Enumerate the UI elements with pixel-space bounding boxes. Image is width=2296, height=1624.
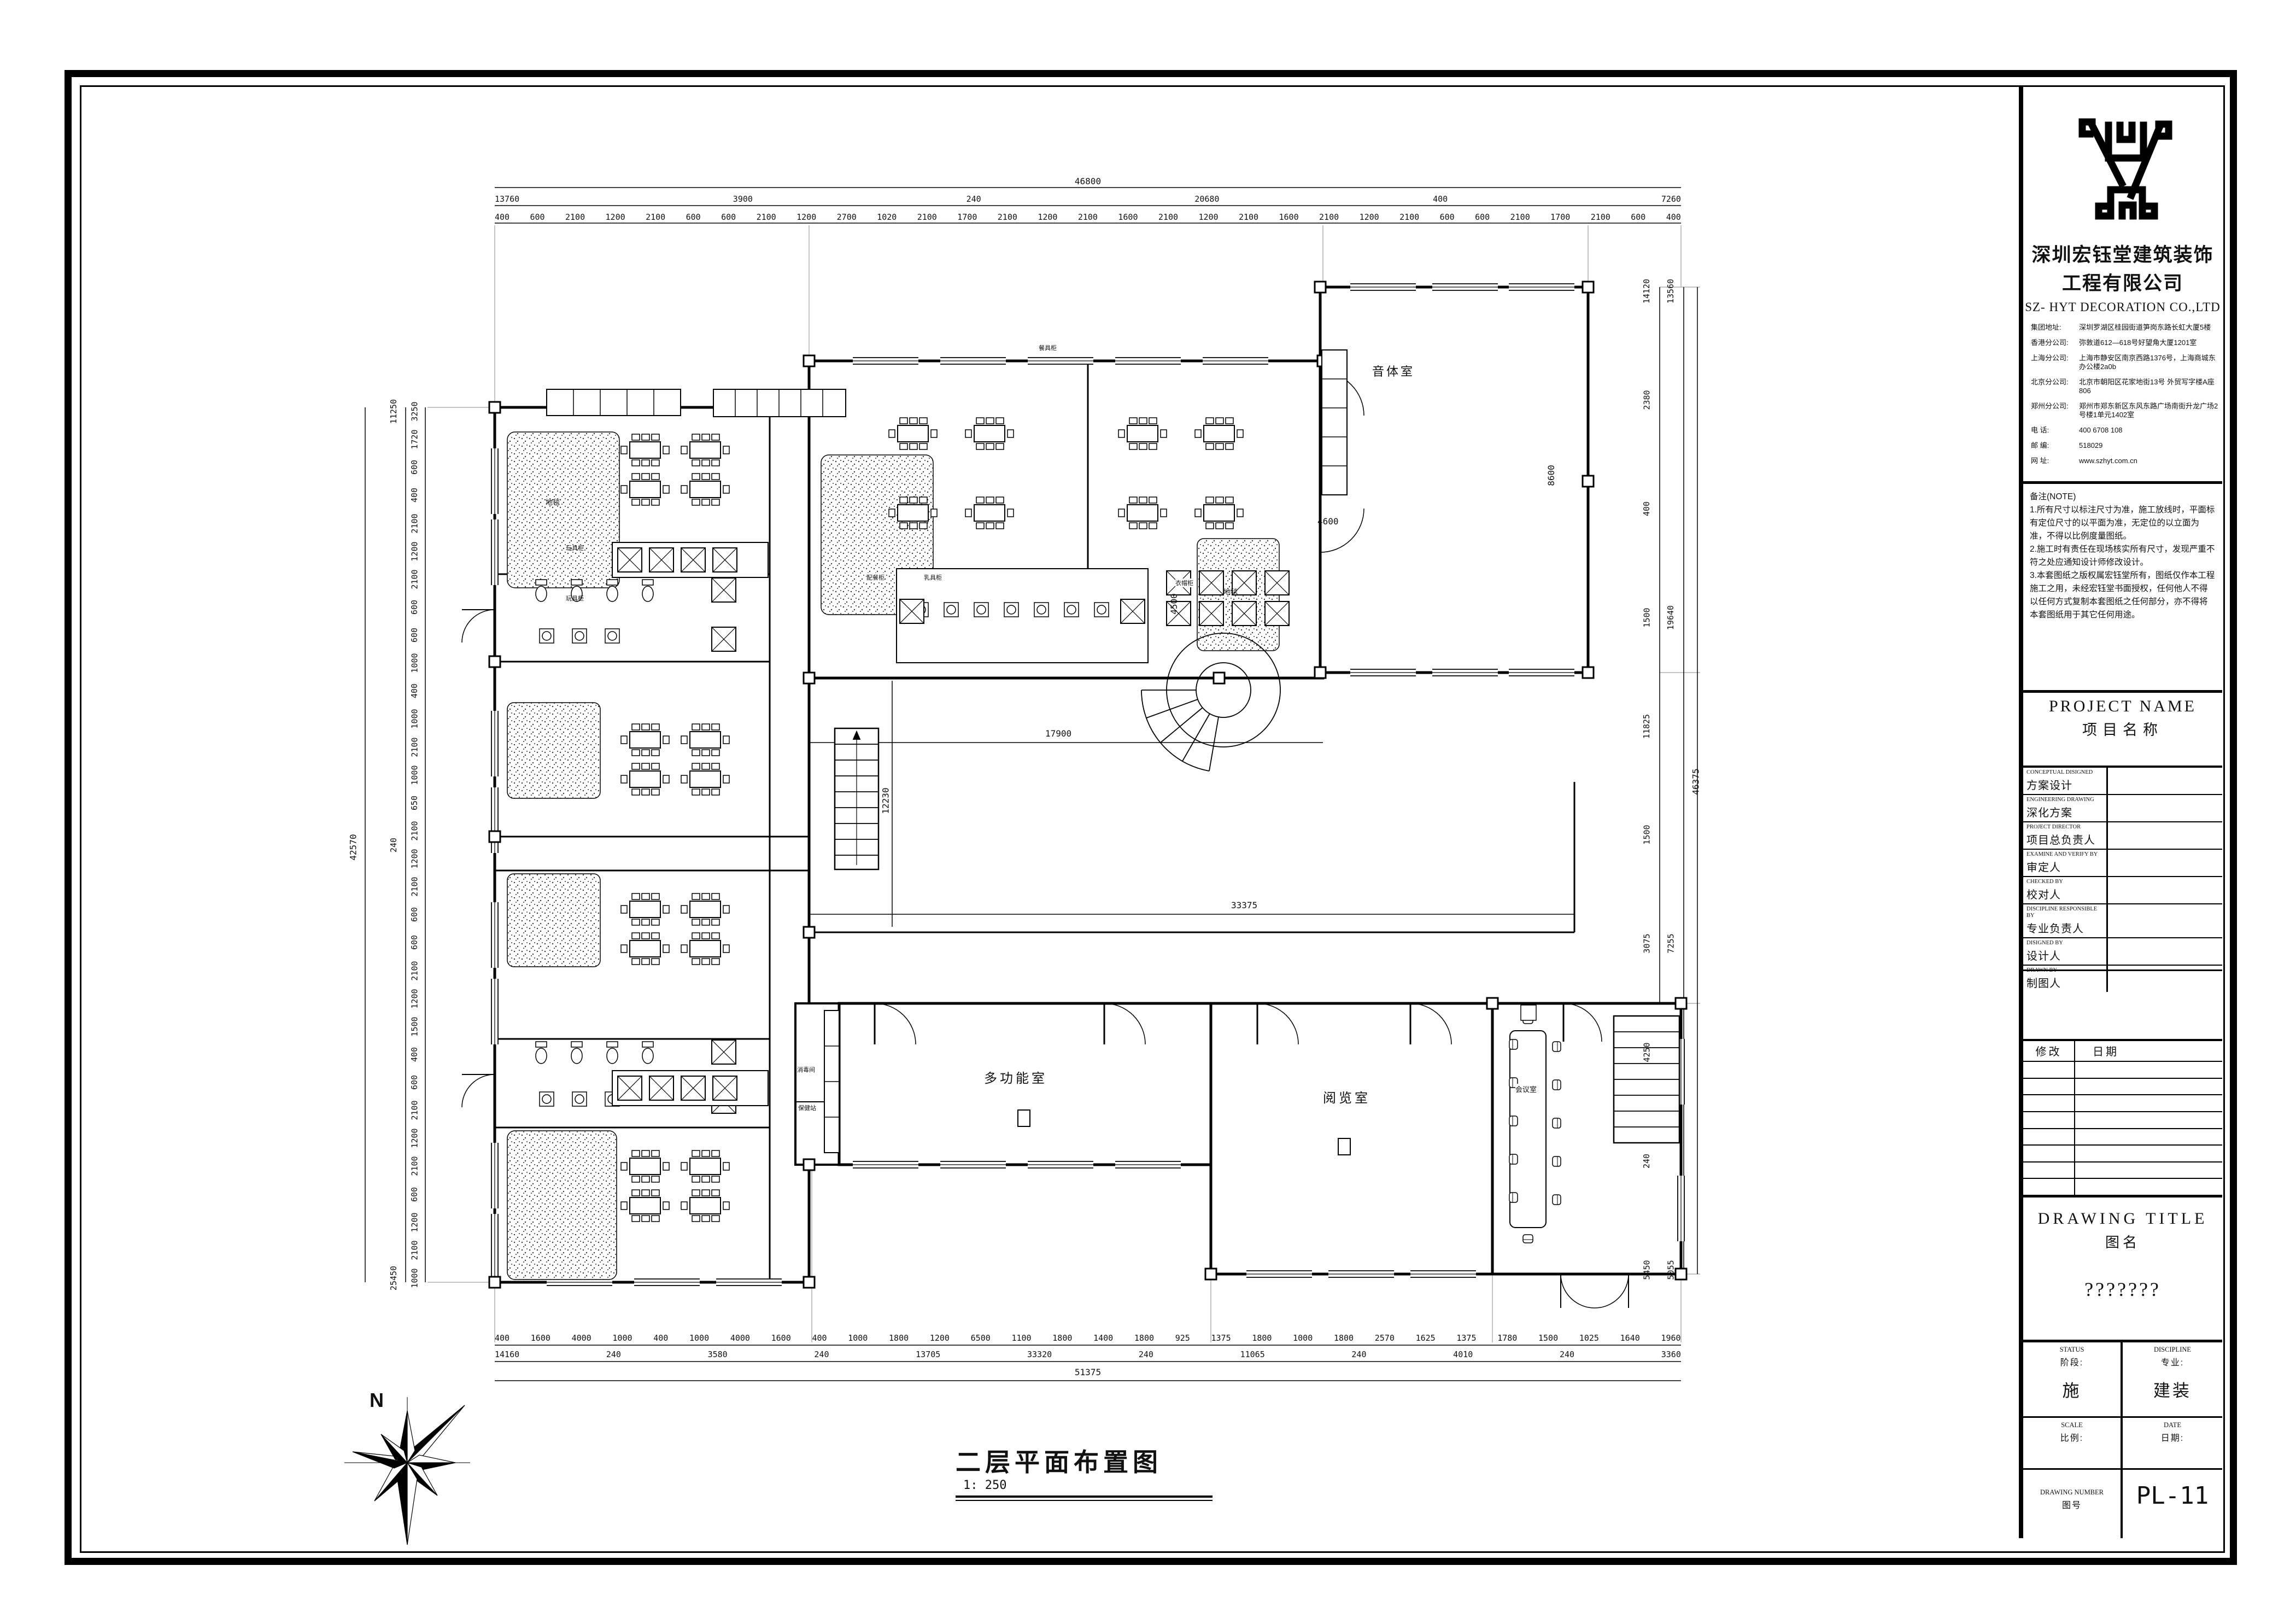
sign-row-en: DISIGNED BY xyxy=(2026,940,2103,947)
project-name-en: PROJECT NAME xyxy=(2023,697,2222,716)
addr-text: 400 6708 108 xyxy=(2079,426,2219,435)
blank-band xyxy=(2023,969,2222,1039)
notes-section: 备注(NOTE) 1.所有尺寸以标注尺寸为准，施工放线时，平面标有定位尺寸的以平… xyxy=(2023,481,2222,690)
sign-row-value xyxy=(2108,795,2222,821)
dim-17900: 17900 xyxy=(1045,728,1071,739)
company-name-cn-line2: 工程有限公司 xyxy=(2023,270,2222,298)
room-label-reading: 阅览室 xyxy=(1323,1087,1370,1106)
status-en: STATUS xyxy=(2023,1346,2121,1354)
room-label-meeting: 会议室 xyxy=(1515,1084,1537,1094)
sign-row-cn: 专业负责人 xyxy=(2026,920,2103,936)
addr-label: 北京分公司: xyxy=(2031,378,2079,395)
revision-row xyxy=(2023,1128,2222,1145)
dim-right-total: 46375 xyxy=(1691,768,1701,795)
drawing-title-value: ??????? xyxy=(2023,1278,2222,1301)
sign-row-checked: CHECKED BY校对人 xyxy=(2023,877,2222,904)
sign-row-cn: 设计人 xyxy=(2026,947,2103,963)
dim-bottom-total: 51375 xyxy=(495,1367,1681,1377)
sign-row-en: CONCEPTUAL DISIGNED xyxy=(2026,769,2103,776)
revision-row xyxy=(2023,1161,2222,1178)
dim-left-total: 42570 xyxy=(348,834,359,860)
discipline-en: DISCIPLINE xyxy=(2123,1346,2222,1354)
label-dish-cabinet: 餐具柜 xyxy=(1039,343,1057,352)
addr-label: 集团地址: xyxy=(2031,323,2079,332)
status-discipline-row: STATUS 阶段: 施 DISCIPLINE 专业: 建装 xyxy=(2023,1340,2222,1416)
sign-row-value xyxy=(2108,768,2222,794)
addr-text: 弥敦道612—618号好望角大厦1201室 xyxy=(2079,338,2219,347)
addr-text: 北京市朝阳区花家地街13号 外贸写字楼A座806 xyxy=(2079,378,2219,395)
label-toy-cabinet-2: 玩具柜 xyxy=(566,594,584,603)
company-name-cn-line1: 深圳宏钰堂建筑装饰 xyxy=(2023,241,2222,270)
sign-row-cn: 方案设计 xyxy=(2026,776,2103,792)
dim-top-chain: 4006002100120021006006002100120027001020… xyxy=(495,212,1681,222)
revision-row xyxy=(2023,1094,2222,1111)
label-toy-cabinet-1: 玩具柜 xyxy=(566,544,584,552)
dim-top-total: 46800 xyxy=(495,176,1681,186)
addr-label: 郑州分公司: xyxy=(2031,402,2079,419)
addr-text: 518029 xyxy=(2079,441,2219,450)
company-name-cn: 深圳宏钰堂建筑装饰 工程有限公司 xyxy=(2023,241,2222,298)
dim-4500: 4500 xyxy=(1169,593,1179,615)
drawing-number-en: DRAWING NUMBER xyxy=(2023,1488,2121,1497)
sign-row-value xyxy=(2108,938,2222,965)
sign-row-value xyxy=(2108,822,2222,849)
drawing-caption: 二层平面布置图 1: 250 xyxy=(956,1442,1213,1501)
project-name-cn: 项目名称 xyxy=(2023,718,2222,739)
caption-scale: 1: 250 xyxy=(963,1479,1006,1492)
sign-row-en: PROJECT DIRECTOR xyxy=(2026,824,2103,831)
status-cell: STATUS 阶段: 施 xyxy=(2023,1342,2123,1416)
sign-row-value xyxy=(2108,850,2222,876)
caption-underline-2 xyxy=(956,1500,1213,1501)
addr-label: 上海分公司: xyxy=(2031,354,2079,371)
revision-row xyxy=(2023,1111,2222,1128)
sign-row-value xyxy=(2108,877,2222,903)
revision-row xyxy=(2023,1078,2222,1095)
sign-row-director: PROJECT DIRECTOR项目总负责人 xyxy=(2023,822,2222,850)
addr-label: 香港分公司: xyxy=(2031,338,2079,347)
caption-text: 二层平面布置图 xyxy=(956,1442,1162,1479)
sign-row-en: CHECKED BY xyxy=(2026,879,2103,885)
sign-row-discipline-resp: DISCIPLINE RESPONSIBLE BY专业负责人 xyxy=(2023,904,2222,938)
addr-text: 深圳罗湖区桂园街道笋岗东路长虹大厦5楼 xyxy=(2079,323,2219,332)
revision-header-date: 日期 xyxy=(2075,1041,2222,1061)
addr-text: 上海市静安区南京西路1376号，上海商城东办公楼2a0b xyxy=(2079,354,2219,371)
sign-row-cn: 项目总负责人 xyxy=(2026,831,2103,847)
caption-underline xyxy=(956,1496,1213,1498)
revision-row xyxy=(2023,1178,2222,1195)
label-milk-cabinet: 乳具柜 xyxy=(924,573,942,582)
addr-text: www.szhyt.com.cn xyxy=(2079,457,2219,465)
dim-12230: 12230 xyxy=(881,787,891,814)
notes-title: 备注(NOTE) xyxy=(2030,490,2216,504)
addr-text: 郑州市郑东新区东风东路广场南街升龙广场2号楼1单元1402室 xyxy=(2079,402,2219,419)
drawing-sheet: 46800 137603900240206804007260 400600210… xyxy=(0,0,2296,1624)
discipline-cn: 专业: xyxy=(2123,1355,2222,1368)
north-label: N xyxy=(370,1389,384,1412)
sign-row-verify: EXAMINE AND VERIFY BY审定人 xyxy=(2023,850,2222,877)
date-cell: DATE 日期: xyxy=(2123,1418,2222,1468)
room-label-multi: 多功能室 xyxy=(984,1067,1047,1086)
sign-row-engineering: ENGINEERING DRAWING深化方案 xyxy=(2023,795,2222,822)
dim-8600: 8600 xyxy=(1546,465,1556,486)
sign-row-en: EXAMINE AND VERIFY BY xyxy=(2026,851,2103,858)
title-block: 深圳宏钰堂建筑装饰 工程有限公司 SZ- HYT DECORATION CO.,… xyxy=(2019,87,2222,1538)
dim-33375: 33375 xyxy=(1231,900,1257,910)
dim-left-chain: 3250172060040021001200210060060010004001… xyxy=(408,407,422,1282)
signature-rows: CONCEPTUAL DISIGNED方案设计 ENGINEERING DRAW… xyxy=(2023,766,2222,969)
sign-row-conceptual: CONCEPTUAL DISIGNED方案设计 xyxy=(2023,768,2222,795)
dim-right-col2: 135601964072555055 xyxy=(1664,287,1678,1274)
dim-4600: 4600 xyxy=(1317,516,1339,527)
company-section: 深圳宏钰堂建筑装饰 工程有限公司 SZ- HYT DECORATION CO.,… xyxy=(2023,87,2222,481)
sign-row-cn: 校对人 xyxy=(2026,886,2103,902)
revision-header: 修改 日期 xyxy=(2023,1039,2222,1061)
revision-row xyxy=(2023,1061,2222,1078)
status-cn: 阶段: xyxy=(2023,1355,2121,1368)
drawing-number-cn: 图号 xyxy=(2023,1498,2121,1511)
dim-left-row2: 1125024025450 xyxy=(387,407,401,1282)
dim-bottom-row2: 1416024035802401370533320240110652404010… xyxy=(495,1350,1681,1359)
scale-date-row: SCALE 比例: DATE 日期: xyxy=(2023,1416,2222,1468)
scale-cn: 比例: xyxy=(2023,1430,2121,1444)
note-item-1: 1.所有尺寸以标注尺寸为准，施工放线时，平面标有定位尺寸的以平面为准，无定位的以… xyxy=(2030,504,2216,543)
drawing-number-label-cell: DRAWING NUMBER 图号 xyxy=(2023,1470,2123,1538)
addr-label: 电 话: xyxy=(2031,426,2079,435)
sign-row-cn: 审定人 xyxy=(2026,858,2103,874)
floor-plan-drawing xyxy=(0,0,2296,1624)
label-serve-cabinet: 配餐柜 xyxy=(866,573,885,582)
dim-right-col1: 1412023804001500118251500307542502405450 xyxy=(1640,287,1654,1274)
scale-cell: SCALE 比例: xyxy=(2023,1418,2123,1468)
scale-en: SCALE xyxy=(2023,1421,2121,1429)
drawing-number-value: PL-11 xyxy=(2123,1482,2222,1510)
company-name-en: SZ- HYT DECORATION CO.,LTD xyxy=(2023,300,2222,314)
drawing-title-en: DRAWING TITLE xyxy=(2023,1210,2222,1228)
room-label-music: 音体室 xyxy=(1372,362,1415,379)
drawing-title-section: DRAWING TITLE 图名 ??????? xyxy=(2023,1195,2222,1340)
sign-row-value xyxy=(2108,904,2222,937)
drawing-title-cn: 图名 xyxy=(2023,1231,2222,1252)
label-carpet-2: 地毯 xyxy=(1223,586,1238,597)
dim-bottom-chain: 4001600400010004001000400016004001000180… xyxy=(495,1333,1681,1343)
sign-row-en: ENGINEERING DRAWING xyxy=(2026,797,2103,803)
note-item-3: 3.本套图纸之版权属宏钰堂所有，图纸仅作本工程施工之用，未经宏钰堂书面授权，任何… xyxy=(2030,569,2216,622)
label-coat-cabinet: 衣帽柜 xyxy=(1175,579,1193,587)
company-logo-icon xyxy=(2070,109,2180,235)
note-item-2: 2.施工时有责任在现场核实所有尺寸，发现严重不符之处应通知设计师修改设计。 xyxy=(2030,543,2216,569)
revision-header-modify: 修改 xyxy=(2023,1041,2075,1061)
drawing-number-value-cell: PL-11 xyxy=(2123,1470,2222,1538)
sign-row-en: DISCIPLINE RESPONSIBLE BY xyxy=(2026,906,2103,919)
project-name-section: PROJECT NAME 项目名称 xyxy=(2023,690,2222,766)
addr-label: 网 址: xyxy=(2031,457,2079,465)
room-label-health: 保健站 xyxy=(798,1103,816,1112)
dim-top-row2: 137603900240206804007260 xyxy=(495,194,1681,204)
revision-row xyxy=(2023,1144,2222,1161)
date-cn: 日期: xyxy=(2123,1430,2222,1444)
date-en: DATE xyxy=(2123,1421,2222,1429)
label-carpet-1: 地毯 xyxy=(546,496,560,507)
company-addresses: 集团地址:深圳罗湖区桂园街道笋岗东路长虹大厦5楼 香港分公司:弥敦道612—61… xyxy=(2031,323,2219,472)
revision-rows xyxy=(2023,1061,2222,1195)
discipline-value: 建装 xyxy=(2123,1377,2222,1401)
building-walls xyxy=(495,287,1681,1282)
room-label-disinfect: 消毒间 xyxy=(797,1065,815,1074)
north-compass-icon xyxy=(344,1397,470,1545)
status-value: 施 xyxy=(2023,1377,2121,1401)
sign-row-cn: 深化方案 xyxy=(2026,804,2103,820)
drawing-number-row: DRAWING NUMBER 图号 PL-11 xyxy=(2023,1468,2222,1538)
discipline-cell: DISCIPLINE 专业: 建装 xyxy=(2123,1342,2222,1416)
sign-row-designed: DISIGNED BY设计人 xyxy=(2023,938,2222,966)
addr-label: 邮 编: xyxy=(2031,441,2079,450)
